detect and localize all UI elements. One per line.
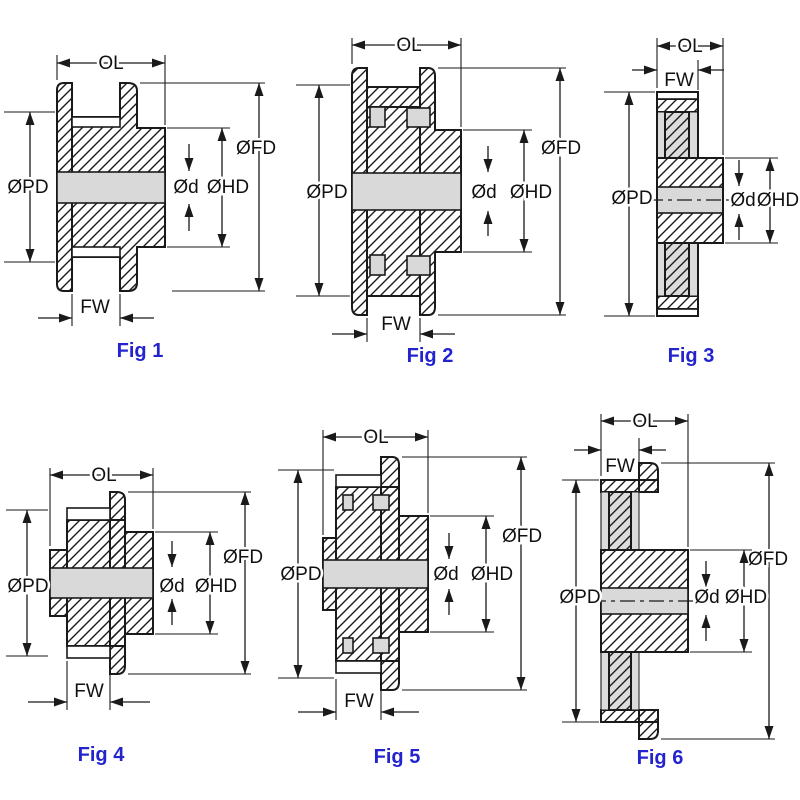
label-fw: FW [344, 691, 374, 712]
tooth-strip-top [67, 508, 110, 520]
label-fd: ØFD [541, 138, 581, 159]
tooth-strip-top [367, 87, 420, 107]
label-pd: ØPD [306, 182, 347, 203]
pulley-cross-section-5 [323, 457, 428, 690]
pulley-cross-section-2 [352, 68, 461, 315]
figure-caption: Fig 6 [637, 747, 684, 769]
label-fd: ØFD [236, 138, 276, 159]
label-fd: ØFD [748, 549, 788, 570]
web-lower-rib [665, 243, 689, 296]
dim-pd: ØPD [4, 112, 55, 262]
pulley-cross-section-3 [648, 92, 732, 316]
figure-caption: Fig 3 [668, 345, 715, 367]
label-hd: ØHD [471, 564, 513, 585]
label-pd: ØPD [7, 177, 48, 198]
dim-pd: ØPD [604, 92, 655, 316]
dim-fw: FW [332, 314, 455, 342]
figure-caption: Fig 4 [78, 744, 126, 766]
figure-caption: Fig 2 [407, 345, 454, 367]
figure-2: OL ØPD ØFD ØHD Ød [296, 35, 581, 367]
insert-block [373, 638, 389, 653]
label-d: Ød [694, 587, 719, 608]
label-pd: ØPD [7, 576, 48, 597]
label-d: Ød [471, 182, 496, 203]
insert-block [343, 495, 353, 510]
cap-bottom [657, 296, 698, 309]
insert-block [370, 107, 385, 127]
label-fw: FW [80, 297, 110, 318]
dim-fw: FW [28, 661, 150, 710]
label-d: Ød [433, 564, 458, 585]
insert-block [370, 255, 385, 275]
dim-d: Ød [694, 561, 719, 641]
dim-d: Ød [433, 533, 458, 615]
label-pd: ØPD [611, 188, 652, 209]
label-fw: FW [74, 681, 104, 702]
label-ol: OL [632, 411, 657, 432]
insert-block [343, 638, 353, 653]
dim-fw: FW [632, 60, 724, 91]
dim-pd: ØPD [559, 480, 600, 722]
dim-d: Ød [173, 144, 198, 231]
dim-pd: ØPD [296, 85, 350, 296]
label-hd: ØHD [195, 576, 237, 597]
figure-4: OL ØPD ØFD ØHD Ød [6, 465, 263, 766]
pulley-drawings-svg: OL ØPD ØFD ØHD Ød [0, 0, 800, 800]
label-ol: OL [396, 35, 421, 56]
dim-pd: ØPD [6, 510, 49, 656]
figure-6: OL FW ØPD ØFD ØHD Ød [559, 411, 788, 769]
figure-caption: Fig 5 [374, 746, 421, 768]
flange-tip-top [639, 463, 658, 492]
pulley-cross-section-1 [57, 83, 165, 291]
label-hd: ØHD [510, 182, 552, 203]
figure-1: OL ØPD ØFD ØHD Ød [4, 53, 276, 362]
dim-d: Ød [730, 160, 755, 240]
web-upper-rib [609, 492, 631, 550]
tooth-strip-bottom [336, 661, 381, 673]
pulley-cross-section-6 [591, 463, 698, 739]
dim-ol: OL [57, 53, 165, 125]
figure-3: OL FW ØPD ØHD Ød Fig 3 [604, 36, 799, 367]
label-fw: FW [664, 70, 694, 91]
label-d: Ød [173, 177, 198, 198]
tooth-strip-bottom [67, 646, 110, 658]
figure-5: OL ØPD ØFD ØHD Ød [278, 427, 542, 768]
tooth-strip-bottom [72, 247, 120, 257]
label-fw: FW [381, 314, 411, 335]
web-upper-rib [665, 112, 689, 158]
bore [57, 172, 165, 203]
insert-block [373, 495, 389, 510]
label-d: Ød [159, 576, 184, 597]
figure-caption: Fig 1 [117, 340, 164, 362]
label-fd: ØFD [223, 547, 263, 568]
flange-tip-bottom [639, 710, 658, 739]
web-lower-rib [609, 652, 631, 710]
label-d: Ød [730, 190, 755, 211]
label-hd: ØHD [725, 587, 767, 608]
cap-top [657, 99, 698, 112]
tooth-strip-top [72, 117, 120, 127]
dim-d: Ød [471, 146, 496, 236]
drawing-sheet: OL ØPD ØFD ØHD Ød [0, 0, 800, 800]
bore [50, 568, 153, 598]
label-fw: FW [605, 456, 635, 477]
insert-block [407, 256, 430, 275]
label-pd: ØPD [559, 587, 600, 608]
insert-block [407, 108, 430, 127]
dim-fw: FW [298, 679, 419, 720]
dim-d: Ød [159, 541, 184, 625]
dim-fw: FW [38, 294, 154, 326]
label-ol: OL [363, 427, 388, 448]
label-fd: ØFD [502, 526, 542, 547]
label-pd: ØPD [280, 564, 321, 585]
label-ol: OL [98, 53, 123, 74]
tooth-strip-top [336, 475, 381, 487]
bore [323, 560, 428, 588]
tooth-strip-top [657, 92, 698, 99]
tooth-strip-bottom [657, 309, 698, 316]
label-ol: OL [677, 36, 702, 57]
label-ol: OL [91, 465, 116, 486]
pulley-cross-section-4 [50, 492, 153, 674]
label-hd: ØHD [757, 190, 799, 211]
bore [352, 173, 461, 210]
label-hd: ØHD [207, 177, 249, 198]
